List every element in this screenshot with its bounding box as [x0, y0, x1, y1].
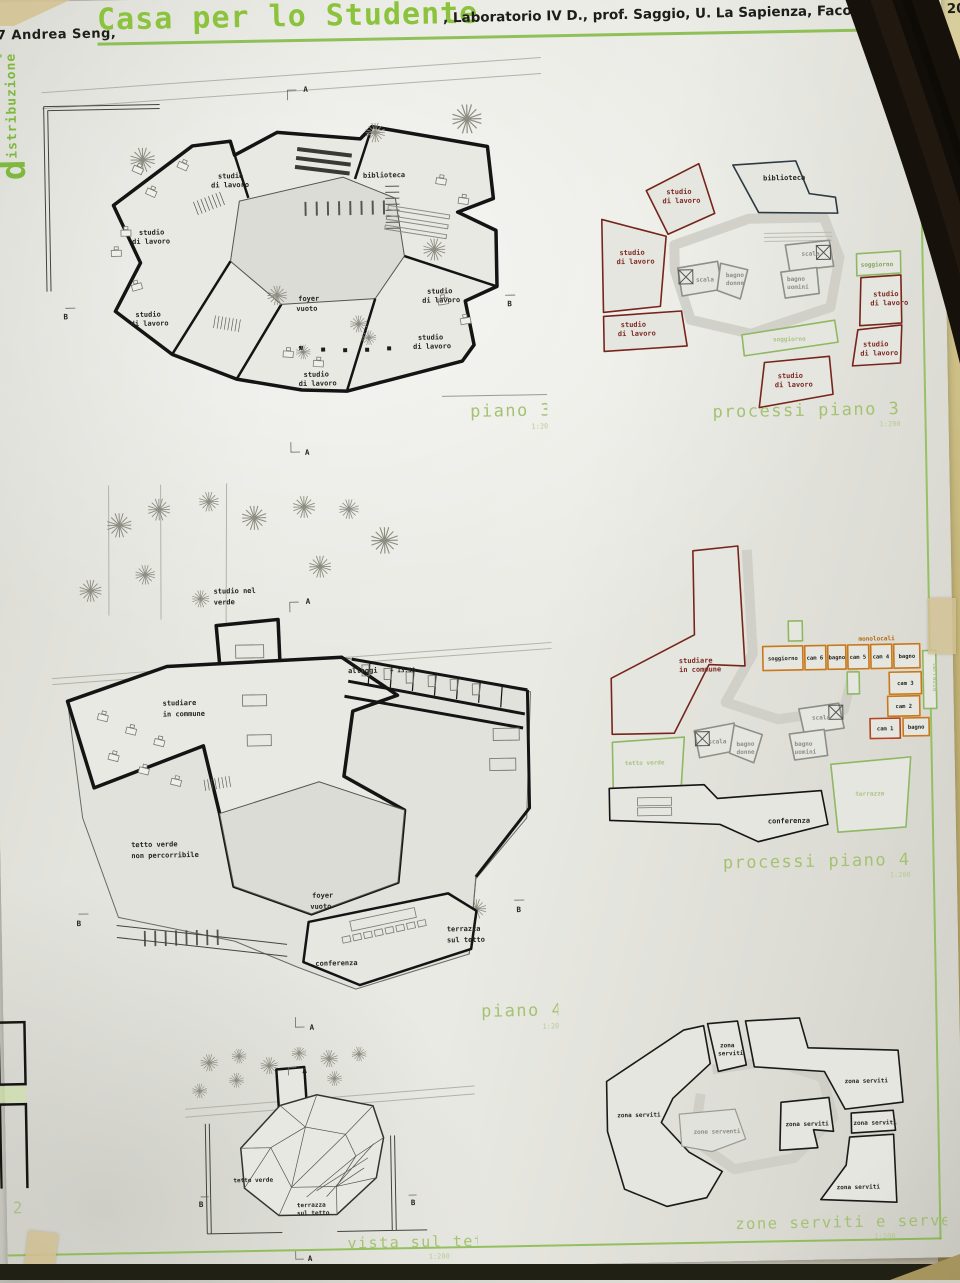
figure-scale: 1:200	[531, 422, 548, 430]
figure-title-zone: zone serviti e serventi	[735, 1211, 948, 1234]
room-label: di lavoro	[413, 342, 451, 351]
zone-label-biblioteca: biblioteca	[763, 174, 805, 183]
figure-scale: 1:200	[890, 871, 911, 879]
floor-plan-piano-4: A A B B studio nel verde studiare in com…	[49, 477, 559, 1056]
zone-label-terrazza: terrazza	[931, 662, 939, 691]
edge-note: 2	[13, 1198, 23, 1217]
room-label: studio	[304, 370, 329, 378]
zone-label: in commune	[679, 665, 721, 674]
section-marker-b-left: B	[199, 1200, 204, 1209]
figure-scale: 1:200	[874, 1232, 895, 1240]
zone-label: zona	[720, 1042, 735, 1049]
zone-label: di lavoro	[860, 349, 898, 358]
zone-label-serventi: zone serventi	[693, 1128, 740, 1136]
figure-scale: 1:200	[879, 420, 900, 428]
room-label-foyer: foyer	[298, 295, 319, 303]
zoning-diagram-zone-serviti: zona serviti zona serviti zona serviti z…	[591, 1005, 947, 1251]
section-marker-a-bottom: A	[309, 1023, 314, 1032]
poster-sheet: 07 Andrea Seng, Casa per lo Studente , L…	[0, 0, 960, 1275]
zone-label: studio	[619, 249, 644, 257]
section-marker-b-right: B	[516, 905, 521, 914]
zone-label: zona serviti	[837, 1184, 881, 1192]
roof-label: sul tetto	[297, 1210, 330, 1218]
figure-title-piano4: piano 4	[481, 1000, 559, 1022]
monolocale-room: bagno	[899, 654, 916, 660]
section-marker-b-right: B	[507, 299, 512, 308]
section-label-distribuzione: distribuzione	[2, 62, 24, 180]
monolocale-room: soggiorno	[768, 656, 799, 663]
zoning-diagram-processi-piano-4: studiare in commune monolocali soggiorno…	[595, 530, 942, 896]
floor-plan-piano-3: A A B B studio di lavoro biblioteca stud…	[41, 48, 548, 467]
room-label: studio	[218, 172, 243, 180]
zone-label-uomini: uomini	[787, 284, 809, 291]
section-label-rest: istribuzione	[4, 53, 21, 159]
section-label-initial: d	[0, 158, 34, 180]
zone-label-scala: scala	[801, 250, 820, 257]
zone-label-tetto-verde: tetto verde	[625, 759, 665, 767]
zone-label: studio	[863, 340, 888, 348]
room-label: di lavoro	[211, 181, 249, 190]
monolocale-room: bagno	[908, 725, 925, 731]
section-marker-b-right: B	[411, 1198, 416, 1207]
zone-label: zona serviti	[785, 1120, 829, 1128]
zone-label-scala: scala	[708, 738, 727, 745]
room-label: di lavoro	[132, 237, 170, 246]
section-marker-a-top: A	[302, 1066, 307, 1075]
zone-label-uomini: uomini	[795, 749, 817, 756]
zone-label: zona serviti	[845, 1077, 889, 1085]
zone-label-bagno: bagno	[794, 741, 813, 748]
monolocale-room: cam 4	[873, 654, 890, 660]
area-label: tetto verde	[131, 840, 177, 849]
section-marker-b-left: B	[77, 919, 82, 928]
zone-label: zona serviti	[853, 1119, 897, 1127]
section-marker-a-top: A	[303, 85, 308, 94]
zone-label: zona serviti	[617, 1112, 661, 1120]
zone-label-scala: scala	[812, 714, 831, 721]
room-label: studio	[418, 333, 443, 341]
zone-label-soggiorno: soggiorno	[773, 336, 806, 344]
roof-label: terrazza	[297, 1202, 326, 1210]
zone-label-bagno: bagno	[736, 741, 755, 748]
tape-right-edge	[928, 598, 956, 654]
dark-floor-band	[0, 1264, 960, 1280]
area-label: verde	[214, 598, 235, 606]
section-marker-a-bottom: A	[305, 448, 310, 457]
section-marker-a-bottom: A	[308, 1254, 313, 1263]
section-marker-b-left: B	[63, 312, 68, 321]
zone-label-terrazza: terrazza	[855, 790, 884, 798]
figure-title-processi4: processi piano 4	[723, 850, 911, 873]
area-label-alloggi: alloggi	[348, 667, 378, 676]
zone-label: di lavoro	[617, 257, 655, 266]
monolocale-room: cam 2	[895, 704, 912, 710]
level-note: + 13.50	[390, 667, 416, 674]
poster: 07 Andrea Seng, Casa per lo Studente , L…	[0, 0, 960, 1275]
zone-label: studio	[666, 188, 691, 196]
figure-title-processi3: processi piano 3	[712, 399, 900, 422]
monolocale-room: cam 1	[877, 726, 894, 732]
figure-title-piano3: piano 3	[470, 400, 548, 422]
monolocale-room: bagno	[829, 655, 846, 661]
zone-label-donne: donne	[737, 749, 756, 756]
zone-label: di lavoro	[775, 381, 813, 390]
zone-label: studio	[873, 290, 898, 298]
title-underline-tail	[0, 54, 2, 57]
area-label-foyer: vuoto	[310, 903, 331, 911]
zone-label-conferenza: conferenza	[768, 817, 810, 826]
room-label-foyer: vuoto	[296, 305, 317, 313]
figure-title-vista: vista sul tetto	[347, 1231, 478, 1252]
monolocale-room: cam 5	[850, 655, 867, 661]
zone-label: serviti	[718, 1050, 744, 1057]
zone-label-soggiorno: soggiorno	[861, 261, 894, 269]
roof-plan-vista-sul-tetto: A A B B tetto verde terrazza sul tetto v…	[184, 1044, 478, 1279]
figure-scale: 1:200	[429, 1252, 450, 1260]
monolocale-room: cam 3	[897, 681, 914, 687]
area-label: in commune	[163, 710, 205, 719]
partial-drawing-left-edge	[0, 1018, 40, 1189]
area-label: studio nel	[213, 587, 255, 596]
area-label-conferenza: conferenza	[315, 959, 357, 968]
room-label: di lavoro	[131, 319, 169, 328]
zone-label-monolocali: monolocali	[858, 635, 895, 643]
zone-label-scala: scala	[696, 276, 715, 283]
room-label: studio	[139, 228, 164, 236]
zone-label-bagno: bagno	[726, 272, 745, 279]
section-marker-a-top: A	[306, 597, 311, 606]
area-label: studiare	[163, 699, 197, 708]
poster-title: Casa per lo Studente	[97, 0, 479, 38]
zone-label: studio	[778, 372, 803, 380]
room-label-biblioteca: biblioteca	[363, 171, 405, 180]
zone-label-donne: donne	[726, 280, 745, 287]
room-label: di lavoro	[422, 296, 460, 305]
figure-scale: 1:200	[542, 1022, 559, 1030]
zone-label: di lavoro	[870, 299, 908, 308]
zoning-diagram-processi-piano-3: studio di lavoro biblioteca studio di la…	[588, 145, 933, 441]
room-label: studio	[427, 287, 452, 295]
area-label: non percorribile	[131, 851, 199, 860]
photo-of-architecture-poster: { "header": { "author": "07 Andrea Seng,…	[0, 0, 960, 1280]
zone-label: di lavoro	[618, 329, 656, 338]
area-label-foyer: foyer	[312, 891, 333, 899]
roof-label: tetto verde	[233, 1177, 273, 1185]
zone-label: di lavoro	[662, 197, 700, 206]
zone-label-bagno: bagno	[787, 276, 806, 283]
course-info: , Laboratorio IV D., prof. Saggio, U. La…	[443, 1, 960, 27]
monolocale-room: cam 6	[807, 655, 824, 661]
zone-label: studio	[621, 321, 646, 329]
room-label: di lavoro	[299, 379, 337, 388]
area-label: terrazza	[447, 925, 481, 934]
room-label: studio	[135, 311, 160, 319]
zone-label: studiare	[679, 656, 713, 665]
area-label: sul tetto	[447, 936, 485, 945]
